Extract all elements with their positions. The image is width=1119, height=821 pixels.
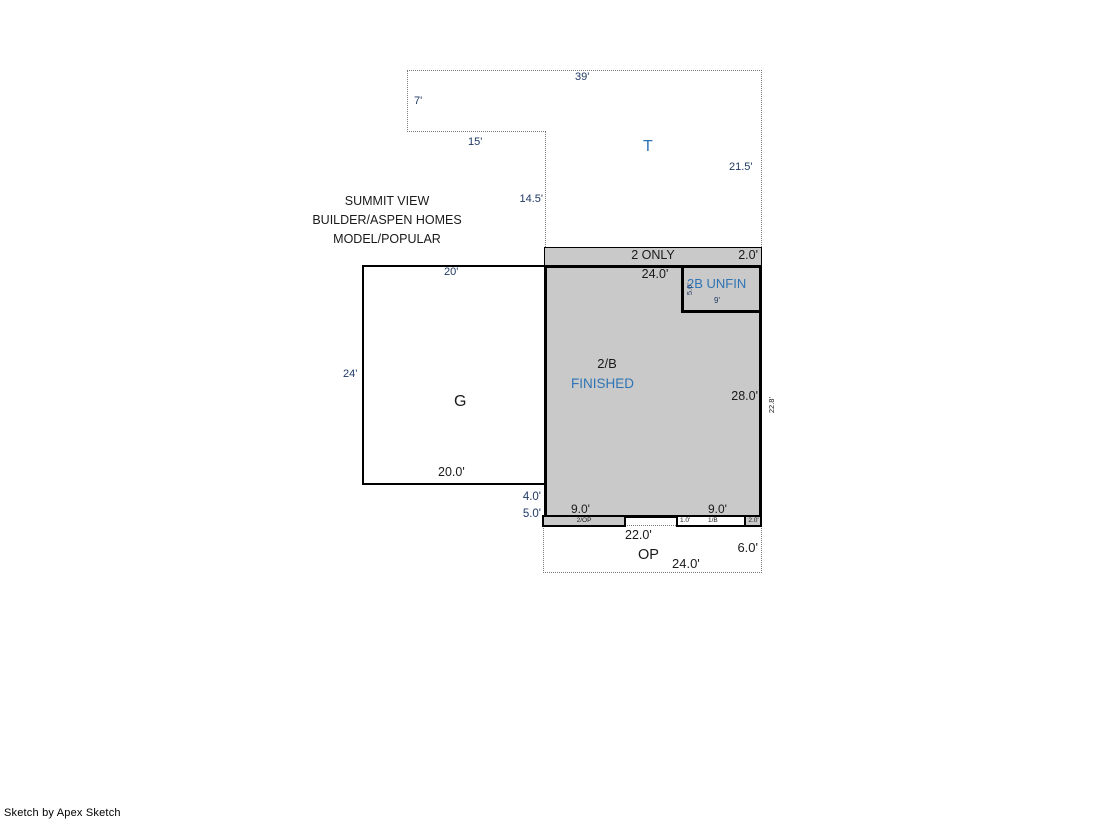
dim-5-0ft: 5.0' xyxy=(511,508,541,521)
tract-outline-right-edge xyxy=(761,70,762,247)
dim-24ft-garage-left: 24' xyxy=(343,368,357,380)
dim-9-0ft-right: 9.0' xyxy=(708,503,727,516)
tract-outline-step-vertical-edge xyxy=(545,131,546,247)
dim-4-0ft: 4.0' xyxy=(511,491,541,504)
dim-14-5ft: 14.5' xyxy=(510,193,543,205)
tract-area-label: T xyxy=(643,138,653,156)
dim-9-0ft-left: 9.0' xyxy=(571,503,590,516)
floorplan-sketch-canvas: 39' 7' 15' T 21.5' 14.5' SUMMIT VIEW BUI… xyxy=(0,0,1119,821)
unfinished-area-label: 2B UNFIN xyxy=(687,277,746,291)
dim-2-0ft-strip-right: 2.0' xyxy=(746,517,761,524)
finished-area-status: FINISHED xyxy=(571,377,634,392)
dim-22-0ft-porch: 22.0' xyxy=(625,529,652,543)
dim-24-0ft-top: 24.0' xyxy=(630,268,680,282)
dim-20ft-garage-top: 20' xyxy=(444,266,458,278)
garage-area-label: G xyxy=(454,393,466,411)
dim-15ft: 15' xyxy=(468,136,482,148)
porch-strip-2op-label: 2/OP xyxy=(542,517,626,524)
dim-1-0ft-strip: 1.0' xyxy=(680,517,690,524)
annotation-line-1: SUMMIT VIEW xyxy=(287,192,487,211)
annotation-line-2: BUILDER/ASPEN HOMES xyxy=(287,211,487,230)
dim-24-0ft-porch: 24.0' xyxy=(672,557,700,571)
open-porch-label: OP xyxy=(638,548,659,564)
dim-7ft: 7' xyxy=(414,95,422,107)
annotation-line-3: MODEL/POPULAR xyxy=(287,230,487,249)
dim-9ft: 9' xyxy=(714,297,720,306)
dim-2-0ft-strip: 2.0' xyxy=(712,249,758,263)
garage-area xyxy=(362,265,546,485)
apex-sketch-watermark: Sketch by Apex Sketch xyxy=(4,807,121,819)
dim-20-0ft-garage-bottom: 20.0' xyxy=(438,466,465,480)
strip-1b-label: 1/B xyxy=(708,517,718,524)
dim-39ft: 39' xyxy=(575,71,589,83)
tract-outline-left-edge xyxy=(407,70,408,132)
dim-6-0ft-porch: 6.0' xyxy=(728,541,758,555)
finished-area-name: 2/B xyxy=(585,357,629,371)
dim-5-0ft-vertical: 5.0' xyxy=(686,277,694,301)
dim-28-0ft: 28.0' xyxy=(710,390,758,404)
annotation-block: SUMMIT VIEW BUILDER/ASPEN HOMES MODEL/PO… xyxy=(287,192,487,249)
dim-21-5ft: 21.5' xyxy=(729,161,753,173)
dim-22-8ft-vertical: 22.8' xyxy=(768,392,776,418)
tract-outline-step-edge xyxy=(407,131,546,132)
